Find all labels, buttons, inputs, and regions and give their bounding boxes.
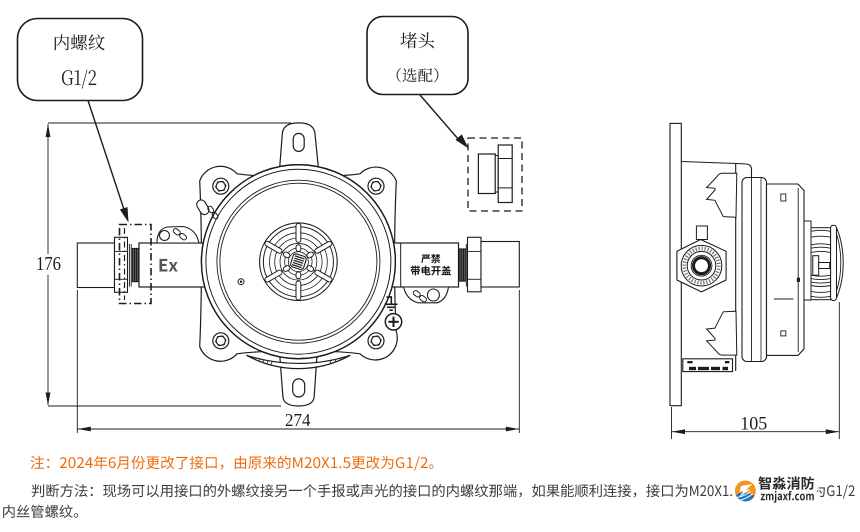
svg-text:105: 105	[740, 414, 767, 435]
svg-text:274: 274	[285, 410, 311, 430]
svg-text:176: 176	[36, 253, 61, 275]
